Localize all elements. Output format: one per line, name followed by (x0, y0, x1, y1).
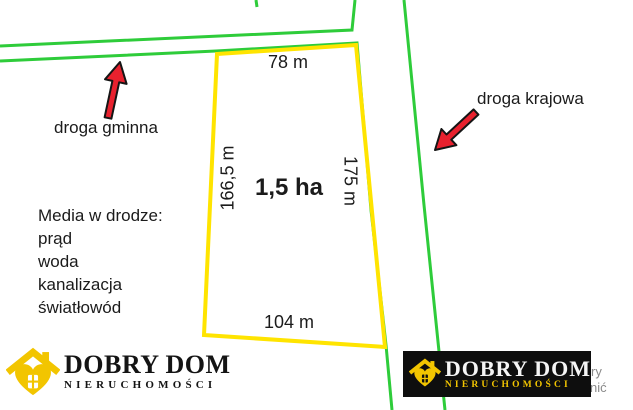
krajowa-road-arrow-icon (435, 109, 478, 150)
plot-bottom-dimension: 104 m (264, 312, 314, 333)
media-item-water: woda (38, 250, 163, 273)
roof-shape (8, 352, 59, 372)
media-list-title: Media w drodze: (38, 204, 163, 227)
land-plot-diagram: 78 m 166,5 m 175 m 104 m 1,5 ha droga gm… (0, 0, 633, 410)
plot-area-label: 1,5 ha (255, 174, 323, 202)
logo-light-text: DOBRY DOM NIERUCHOMOŚCI (64, 353, 231, 391)
plot-right-dimension: 175 m (340, 156, 361, 206)
logo-light-title: DOBRY DOM (64, 353, 231, 377)
agency-logo-light: DOBRY DOM NIERUCHOMOŚCI (6, 344, 231, 401)
logo-light-subtitle: NIERUCHOMOŚCI (64, 379, 231, 391)
plot-top-dimension: 78 m (268, 52, 308, 73)
gminna-road-label: droga gminna (54, 118, 158, 138)
gminna-road-north-edge (0, 0, 355, 46)
logo-dark-subtitle: NIERUCHOMOŚCI (445, 380, 591, 390)
cropped-text-fragment: ry (591, 364, 602, 379)
agency-logo-dark: DOBRY DOM NIERUCHOMOŚCI (403, 351, 591, 397)
krajowa-road-east-edge (404, 0, 445, 410)
media-item-sewage: kanalizacja (38, 273, 163, 296)
plot-left-dimension: 166,5 m (218, 145, 239, 210)
cropped-text-fragment: nić (590, 380, 607, 395)
media-item-electricity: prąd (38, 227, 163, 250)
media-list: Media w drodze: prąd woda kanalizacja św… (38, 204, 163, 319)
gminna-road-arrow-icon (105, 62, 127, 119)
house-heart-icon (409, 355, 441, 393)
house-heart-icon (6, 347, 60, 401)
road-stub (256, 0, 257, 7)
roof-shape (410, 361, 440, 373)
krajowa-road-label: droga krajowa (477, 89, 584, 109)
logo-dark-text: DOBRY DOM NIERUCHOMOŚCI (445, 359, 591, 390)
logo-dark-title: DOBRY DOM (445, 359, 591, 379)
media-item-fiber: światłowód (38, 296, 163, 319)
